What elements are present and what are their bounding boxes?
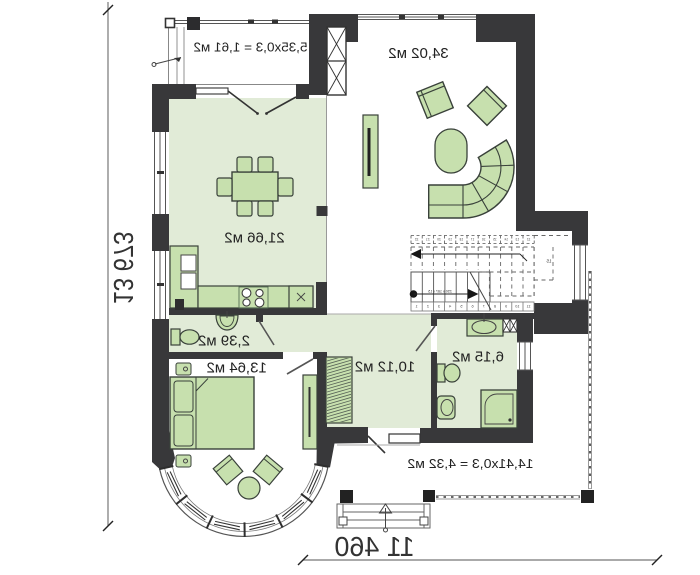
svg-text:20: 20 (437, 238, 441, 242)
svg-text:21: 21 (426, 238, 430, 242)
svg-text:15: 15 (546, 259, 552, 264)
svg-text:22: 22 (415, 238, 419, 242)
svg-text:16: 16 (482, 238, 486, 242)
svg-text:34,02 м2: 34,02 м2 (388, 45, 448, 62)
svg-text:1: 1 (416, 305, 418, 309)
svg-text:6: 6 (472, 305, 474, 309)
svg-text:2: 2 (427, 305, 429, 309)
svg-text:250 x 187 x 15: 250 x 187 x 15 (428, 289, 452, 293)
svg-text:13: 13 (515, 238, 519, 242)
svg-text:3: 3 (438, 305, 440, 309)
svg-text:9: 9 (505, 305, 507, 309)
svg-text:5: 5 (460, 305, 462, 309)
svg-text:21,66 м2: 21,66 м2 (224, 229, 284, 246)
svg-text:10,12 м2: 10,12 м2 (355, 358, 415, 375)
svg-text:14,41x0,3 = 4,32 м2: 14,41x0,3 = 4,32 м2 (408, 456, 534, 471)
svg-text:18: 18 (459, 238, 463, 242)
svg-text:14: 14 (504, 238, 508, 242)
svg-text:4: 4 (449, 305, 451, 309)
svg-text:8: 8 (494, 305, 496, 309)
svg-text:11 460: 11 460 (335, 531, 415, 562)
svg-text:15: 15 (493, 238, 497, 242)
svg-text:13 673: 13 673 (108, 232, 139, 305)
svg-text:5,35x0,3 = 1,61 м2: 5,35x0,3 = 1,61 м2 (194, 39, 308, 54)
svg-text:12: 12 (527, 238, 531, 242)
svg-text:6,15 м2: 6,15 м2 (452, 348, 504, 365)
svg-text:13,64 м2: 13,64 м2 (207, 359, 267, 376)
svg-text:2,39 м2: 2,39 м2 (198, 332, 250, 349)
svg-text:7: 7 (483, 305, 485, 309)
svg-text:10: 10 (515, 305, 519, 309)
svg-text:11: 11 (527, 305, 531, 309)
svg-text:17: 17 (471, 238, 475, 242)
svg-text:19: 19 (448, 238, 452, 242)
